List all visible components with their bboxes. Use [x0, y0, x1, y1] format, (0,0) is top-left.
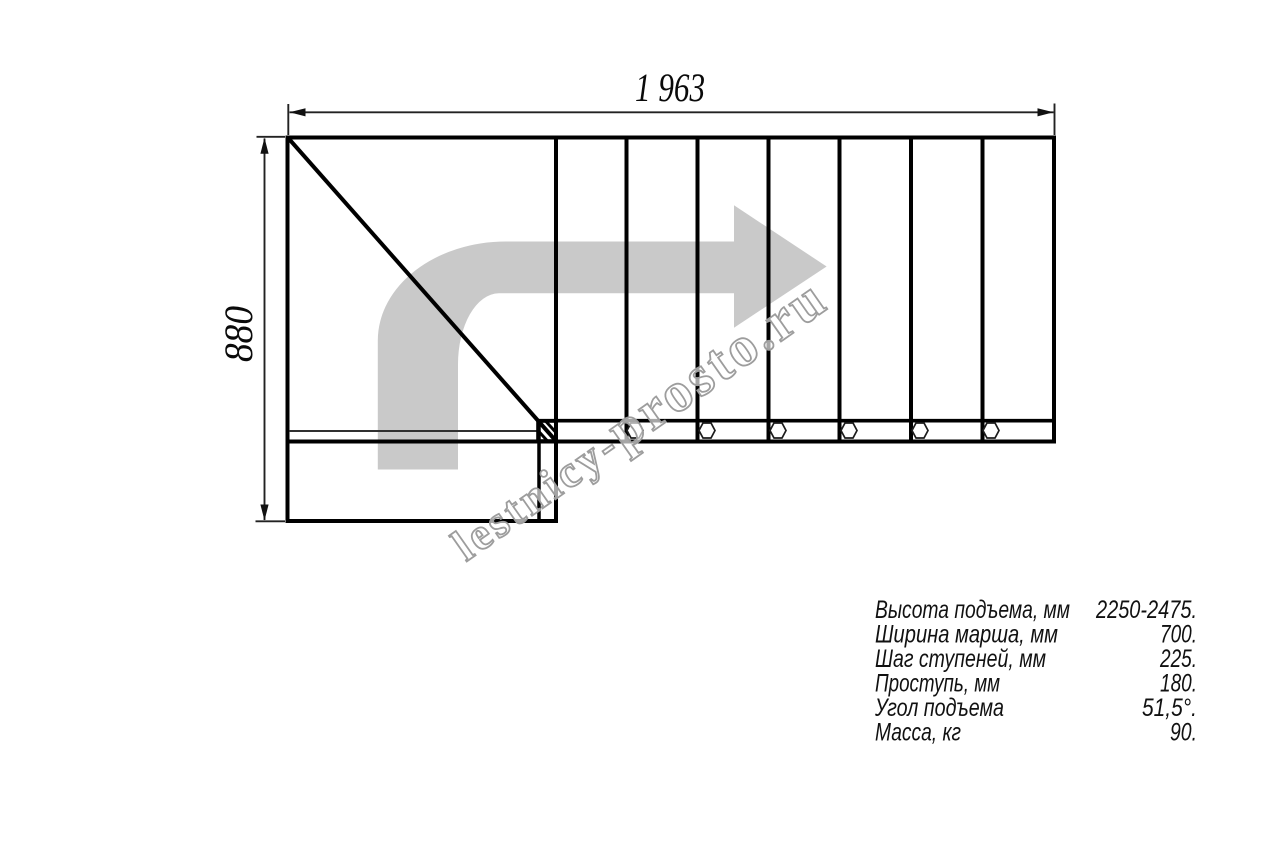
- svg-text:880: 880: [216, 306, 261, 362]
- svg-text:1 963: 1 963: [635, 65, 705, 110]
- svg-text:90.: 90.: [1170, 719, 1197, 747]
- svg-text:Масса, кг: Масса, кг: [875, 719, 961, 747]
